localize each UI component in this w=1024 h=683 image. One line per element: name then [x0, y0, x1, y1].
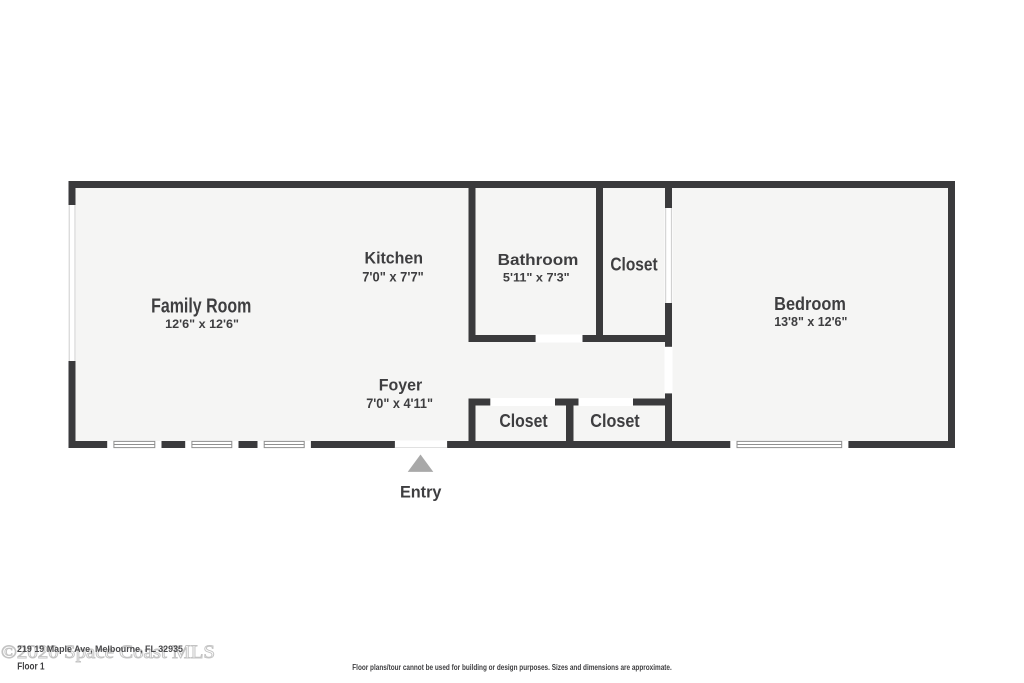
svg-text:Bedroom: Bedroom — [774, 293, 846, 314]
svg-text:7'0" x 4'11": 7'0" x 4'11" — [366, 396, 433, 411]
svg-text:Closet: Closet — [590, 410, 639, 431]
svg-text:Foyer: Foyer — [379, 376, 423, 394]
svg-text:Floor plans/tour cannot be use: Floor plans/tour cannot be used for buil… — [352, 663, 672, 672]
svg-text:Entry: Entry — [400, 483, 442, 502]
svg-text:7'0" x 7'7": 7'0" x 7'7" — [362, 268, 424, 284]
svg-text:13'8" x 12'6": 13'8" x 12'6" — [774, 314, 847, 329]
svg-text:Bathroom: Bathroom — [498, 252, 579, 269]
svg-text:Floor 1: Floor 1 — [17, 662, 45, 673]
svg-text:Family Room: Family Room — [151, 296, 251, 318]
svg-text:5'11" x 7'3": 5'11" x 7'3" — [503, 271, 570, 285]
svg-text:219 19 Maple Ave, Melbourne, F: 219 19 Maple Ave, Melbourne, FL 32935 — [17, 644, 183, 654]
svg-text:Kitchen: Kitchen — [365, 248, 424, 267]
svg-text:Closet: Closet — [499, 410, 547, 431]
svg-text:Closet: Closet — [610, 255, 657, 275]
svg-text:12'6" x 12'6": 12'6" x 12'6" — [165, 317, 239, 331]
